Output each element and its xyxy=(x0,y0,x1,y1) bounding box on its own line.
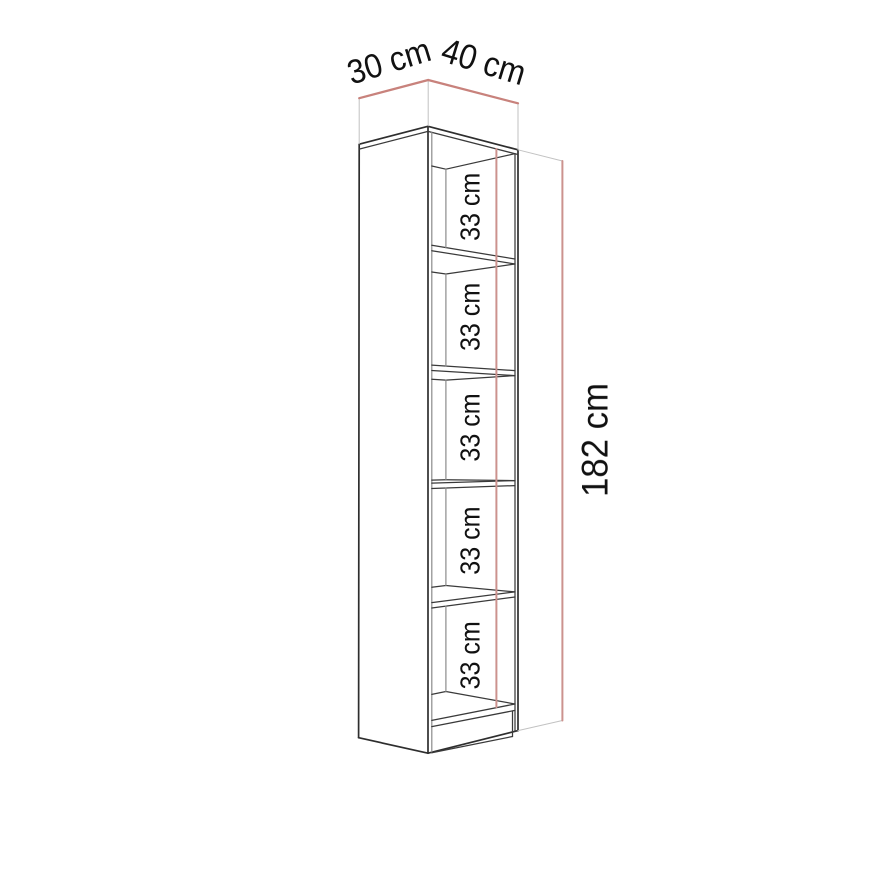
svg-text:33 cm: 33 cm xyxy=(454,393,486,461)
svg-text:33 cm: 33 cm xyxy=(454,621,486,689)
svg-text:182 cm: 182 cm xyxy=(574,383,615,497)
svg-text:33 cm: 33 cm xyxy=(454,173,486,241)
svg-text:33 cm: 33 cm xyxy=(454,283,486,351)
svg-text:33 cm: 33 cm xyxy=(454,506,486,574)
